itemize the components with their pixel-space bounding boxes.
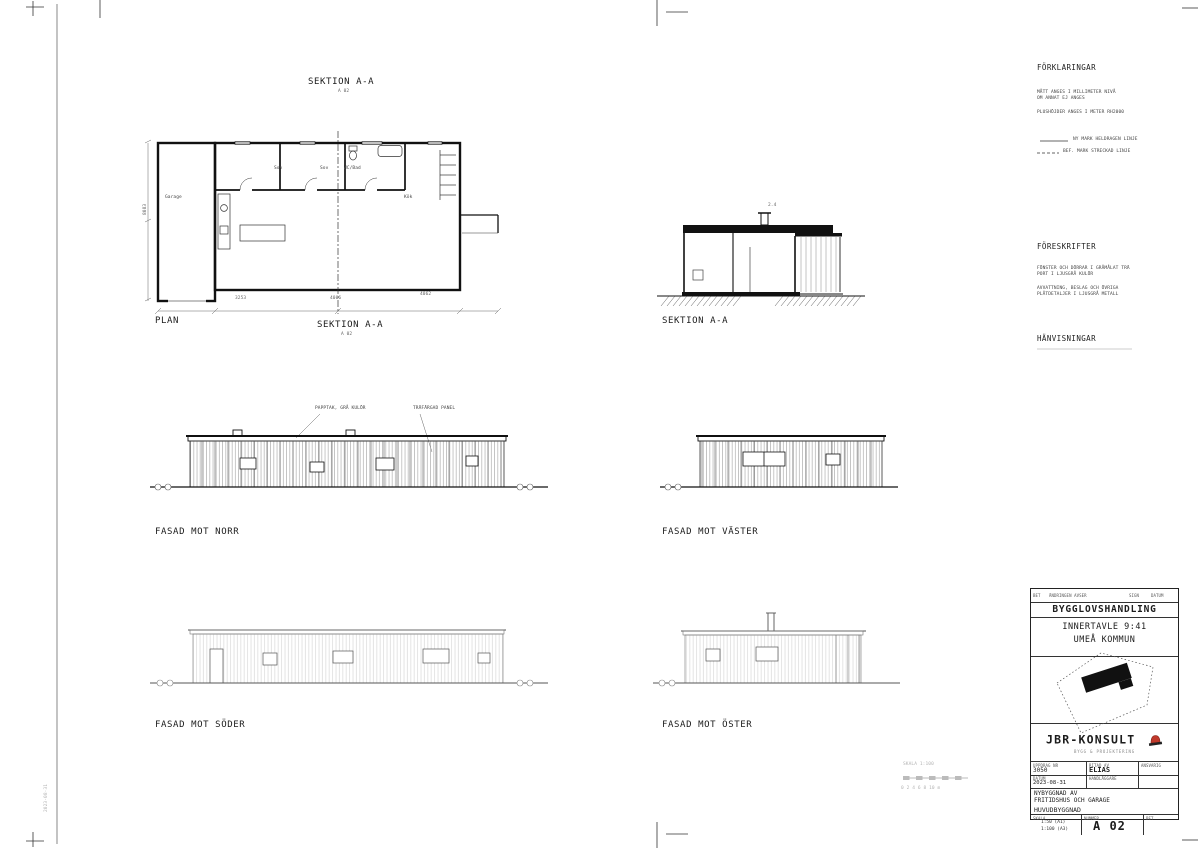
section-height-dim: 2.4 <box>768 203 776 208</box>
section-mid-ref: A 02 <box>341 332 352 337</box>
foreskrifter-note-1b: PORT I LJUSGRÅ KULÖR <box>1037 272 1093 277</box>
rev-bet-label: BET <box>1033 593 1041 598</box>
project-line-2: FRITIDSHUS OCH GARAGE <box>1034 797 1110 804</box>
drawing-content: HUVUDBYGGNAD <box>1034 806 1081 814</box>
facade-north-drawing <box>148 412 558 504</box>
plan-title: PLAN <box>155 316 179 326</box>
forklaringar-title: FÖRKLARINGAR <box>1037 63 1096 72</box>
forklaringar-note-2: PLUSHÖJDER ANGES I METER RH2000 <box>1037 110 1124 115</box>
facade-west-title: FASAD MOT VÄSTER <box>662 527 758 537</box>
site-plan-sketch <box>1031 657 1178 724</box>
foreskrifter-note-1a: FÖNSTER OCH DÖRRAR I GRÅMÅLAT TRÄ <box>1037 266 1130 271</box>
company-tagline: BYGG & PROJEKTERING <box>1031 749 1178 754</box>
section-cut-title: SEKTION A-A <box>308 77 374 87</box>
scalebar-title: SKALA 1:100 <box>903 762 934 767</box>
room-label-sov2: Sov <box>320 166 328 171</box>
company-logo-icon <box>1148 733 1163 746</box>
property-name: INNERTAVLE 9:41 <box>1031 622 1178 632</box>
logo-row: JBR-KONSULT BYGG & PROJEKTERING <box>1031 729 1178 762</box>
fields-grid: UPPDRAG NR 3050 RITAD AV ELIAS ANSVARIG … <box>1031 762 1178 789</box>
scale-number-row: SKALA 1:50 (A1) 1:100 (A3) NUMMER A 02 B… <box>1031 815 1178 835</box>
dim-bottom-3: 4062 <box>420 292 431 297</box>
dim-left: 8083 <box>143 204 148 215</box>
forklaringar-note-1b: OM ANNAT EJ ANGES <box>1037 96 1085 101</box>
room-label-garage: Garage <box>165 195 182 200</box>
section-cut-ref: A 02 <box>338 89 349 94</box>
hanvisningar-title: HÄNVISNINGAR <box>1037 334 1096 343</box>
foreskrifter-note-2b: PLÅTDETALJER I LJUSGRÅ METALL <box>1037 292 1118 297</box>
facade-south-title: FASAD MOT SÖDER <box>155 720 245 730</box>
dim-bottom-1: 3253 <box>235 296 246 301</box>
bet-label: BET <box>1146 816 1154 821</box>
dim-bottom-2: 4006 <box>330 296 341 301</box>
ansvarig-label: ANSVARIG <box>1141 763 1161 768</box>
ritad-value: ELIAS <box>1089 766 1110 774</box>
scalebar <box>900 772 980 784</box>
skala-value-1: 1:50 (A1) <box>1041 820 1065 825</box>
rev-sign-label: SIGN <box>1129 593 1139 598</box>
legend-dashed-label: BEF. MARK STRECKAD LINJE <box>1063 149 1130 154</box>
rev-datum-label: DATUM <box>1151 593 1164 598</box>
drawing-sheet: Garage Sov Sov WC/Bad Kök 3253 4006 4062… <box>0 0 1200 848</box>
section-right-title: SEKTION A-A <box>662 316 728 326</box>
project-description: NYBYGGNAD AV FRITIDSHUS OCH GARAGE HUVUD… <box>1031 789 1178 815</box>
section-drawing <box>655 192 870 314</box>
scalebar-ticks: 0 2 4 6 8 10 m <box>901 786 940 791</box>
doc-type: BYGGLOVSHANDLING <box>1031 603 1178 618</box>
facade-east-drawing <box>648 605 908 700</box>
section-mid-title: SEKTION A-A <box>317 320 383 330</box>
legend-solid-line <box>1040 139 1070 143</box>
hanvisningar-divider <box>1037 348 1137 350</box>
plot-stamp: 2023-08-31 <box>44 784 49 812</box>
room-label-kok: Kök <box>404 195 412 200</box>
datum-value: 2023-08-31 <box>1033 780 1066 786</box>
room-label-sov1: Sov <box>274 166 282 171</box>
legend-solid-label: NY MARK HELDRAGEN LINJE <box>1073 137 1138 142</box>
facade-east-title: FASAD MOT ÖSTER <box>662 720 752 730</box>
drawing-number: A 02 <box>1093 819 1126 833</box>
handlaggare-label: HANDLÄGGARE <box>1089 776 1117 781</box>
foreskrifter-note-2a: AVVATTNING, BESLAG OCH ÖVRIGA <box>1037 286 1118 291</box>
company-name: JBR-KONSULT <box>1046 733 1135 747</box>
revision-header-row: BET ÄNDRINGEN AVSER SIGN DATUM <box>1031 589 1178 603</box>
facade-south-drawing <box>148 605 558 700</box>
rev-andring-label: ÄNDRINGEN AVSER <box>1049 593 1087 598</box>
skala-value-2: 1:100 (A3) <box>1041 827 1068 832</box>
title-block: BET ÄNDRINGEN AVSER SIGN DATUM BYGGLOVSH… <box>1030 588 1179 820</box>
legend-dashed-line <box>1037 151 1061 155</box>
facade-west-drawing <box>648 412 908 504</box>
forklaringar-note-1a: MÅTT ANGES I MILLIMETER NIVÅ <box>1037 90 1116 95</box>
roof-annotation: PAPPTAK, GRÅ KULÖR <box>315 406 366 411</box>
facade-north-title: FASAD MOT NORR <box>155 527 239 537</box>
panel-annotation: TRÄFÄRGAD PANEL <box>413 406 455 411</box>
site-plan-icon <box>1039 643 1174 737</box>
foreskrifter-title: FÖRESKRIFTER <box>1037 242 1096 251</box>
uppdrag-value: 3050 <box>1033 767 1047 774</box>
room-label-wcbad: WC/Bad <box>344 166 361 171</box>
project-line-1: NYBYGGNAD AV <box>1034 790 1077 797</box>
